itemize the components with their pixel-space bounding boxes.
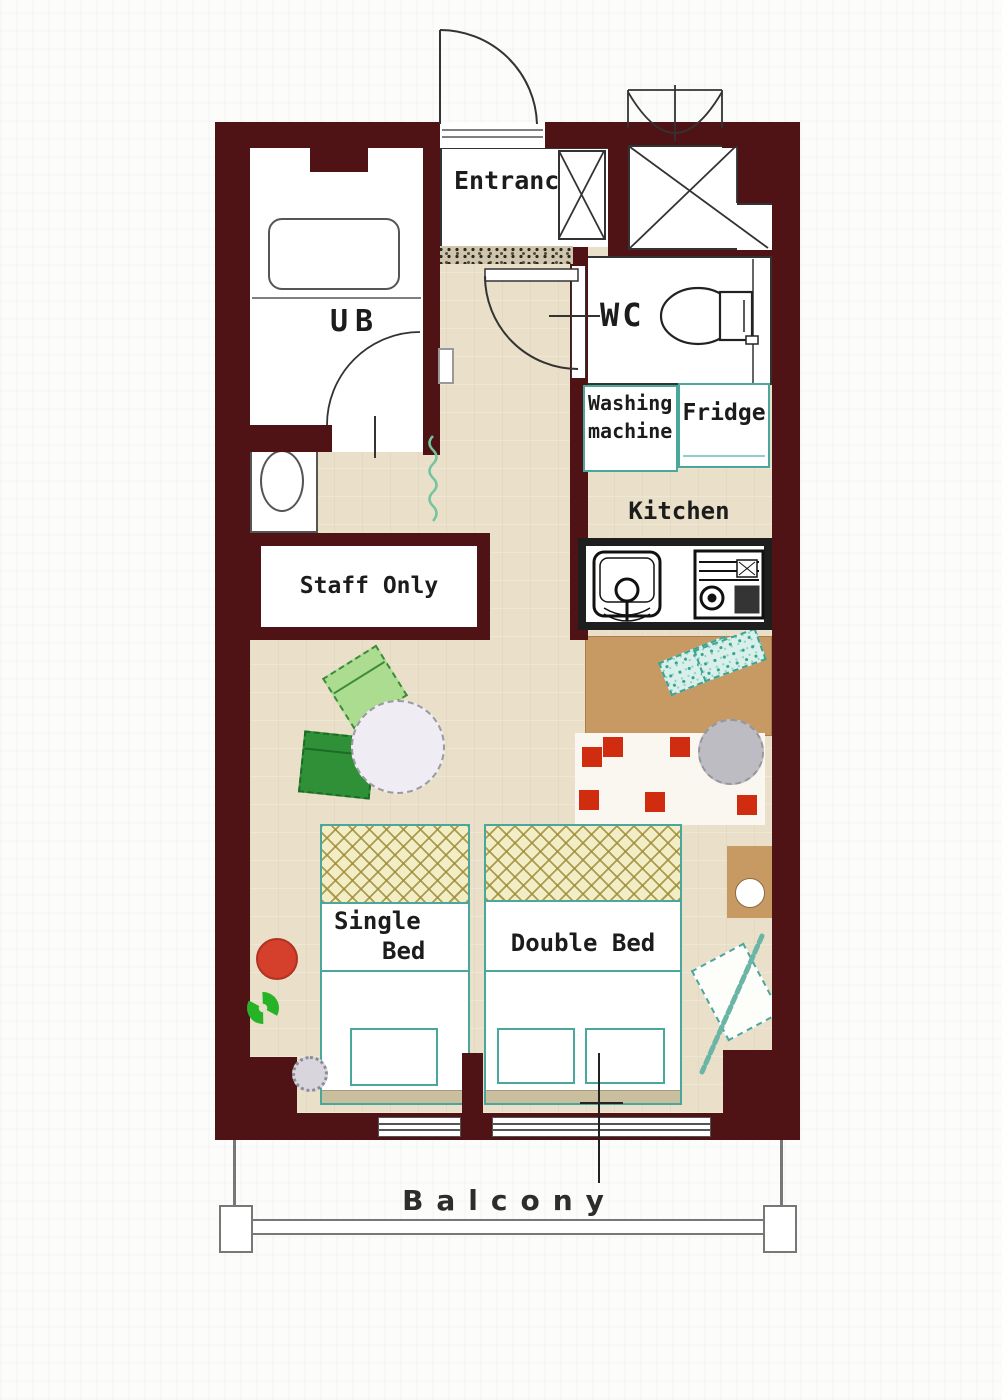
single-bed-foot [322, 1090, 468, 1103]
bedside-table [727, 846, 772, 918]
rug-square [603, 737, 623, 757]
washbasin-bowl [260, 450, 304, 512]
double-bed-pillow [585, 1028, 665, 1084]
single-bed-pillow [350, 1028, 438, 1086]
double-bed-foot [486, 1090, 680, 1103]
entrance-label: Entrance [454, 167, 574, 195]
entrance-step [437, 246, 573, 264]
chair-seam [333, 661, 385, 694]
plant-wreath [247, 992, 279, 1024]
ub-room: UB [250, 147, 423, 430]
single-bed-label-1: Single [334, 908, 421, 934]
fridge: Fridge [678, 383, 770, 468]
fridge-shelf [683, 455, 765, 457]
wall-left [215, 122, 250, 1140]
wc-room: WC [585, 256, 772, 385]
entrance-closet [558, 150, 606, 240]
wall-ub-right [423, 122, 440, 455]
floor-pouf [698, 719, 764, 785]
single-bed-label-2: Bed [382, 938, 425, 964]
wall-ub-bottom [250, 425, 332, 452]
wall-right [772, 122, 800, 1140]
wall-notch [310, 148, 368, 172]
kitchen-counter [578, 538, 772, 630]
wc-label: WC [600, 298, 645, 333]
rug-square [645, 792, 665, 812]
rug-square [579, 790, 599, 810]
wall-top-left [215, 122, 440, 148]
double-bed-pillow [497, 1028, 575, 1084]
round-table [351, 700, 445, 794]
kitchen-counter-top [586, 546, 764, 622]
staff-only-label: Staff Only [261, 546, 477, 627]
single-bed-blanket [322, 826, 468, 904]
window [492, 1117, 711, 1137]
table-lamp [735, 878, 765, 908]
door-hardware [438, 348, 454, 384]
pillar-between-beds [462, 1053, 483, 1115]
ub-label: UB [330, 305, 380, 338]
rug-square [670, 737, 690, 757]
single-bed-line [322, 970, 468, 972]
washing-machine-label-2: machine [588, 420, 672, 442]
entrance-threshold [440, 122, 545, 148]
small-stool [292, 1056, 328, 1092]
wc-door [571, 266, 586, 378]
single-bed: Single Bed [320, 824, 470, 1105]
window [378, 1117, 461, 1137]
double-bed: Double Bed [484, 824, 682, 1105]
storage-shaft [628, 145, 737, 250]
staff-only-closet: Staff Only [248, 533, 490, 640]
storage-shaft-notch [737, 203, 772, 250]
red-stool [256, 938, 298, 980]
rug-square [582, 747, 602, 767]
balcony-label: Balcony [236, 1186, 783, 1217]
floor-plan: Single Bed Double Bed UB Staff Only Entr… [0, 0, 1002, 1400]
double-bed-line [486, 970, 680, 972]
washing-machine-label-1: Washing [588, 392, 672, 414]
kitchen-label: Kitchen [588, 498, 770, 524]
double-bed-blanket [486, 826, 680, 902]
balcony-rail-bottom [253, 1219, 763, 1235]
washing-machine: Washing machine [583, 385, 678, 472]
ub-door-gap [332, 425, 423, 452]
wall-top-mid [545, 122, 628, 148]
fridge-label: Fridge [680, 401, 768, 426]
front-door-swing [440, 30, 543, 137]
bathtub [268, 218, 400, 290]
rug-square [737, 795, 757, 815]
double-bed-label: Double Bed [486, 930, 680, 956]
